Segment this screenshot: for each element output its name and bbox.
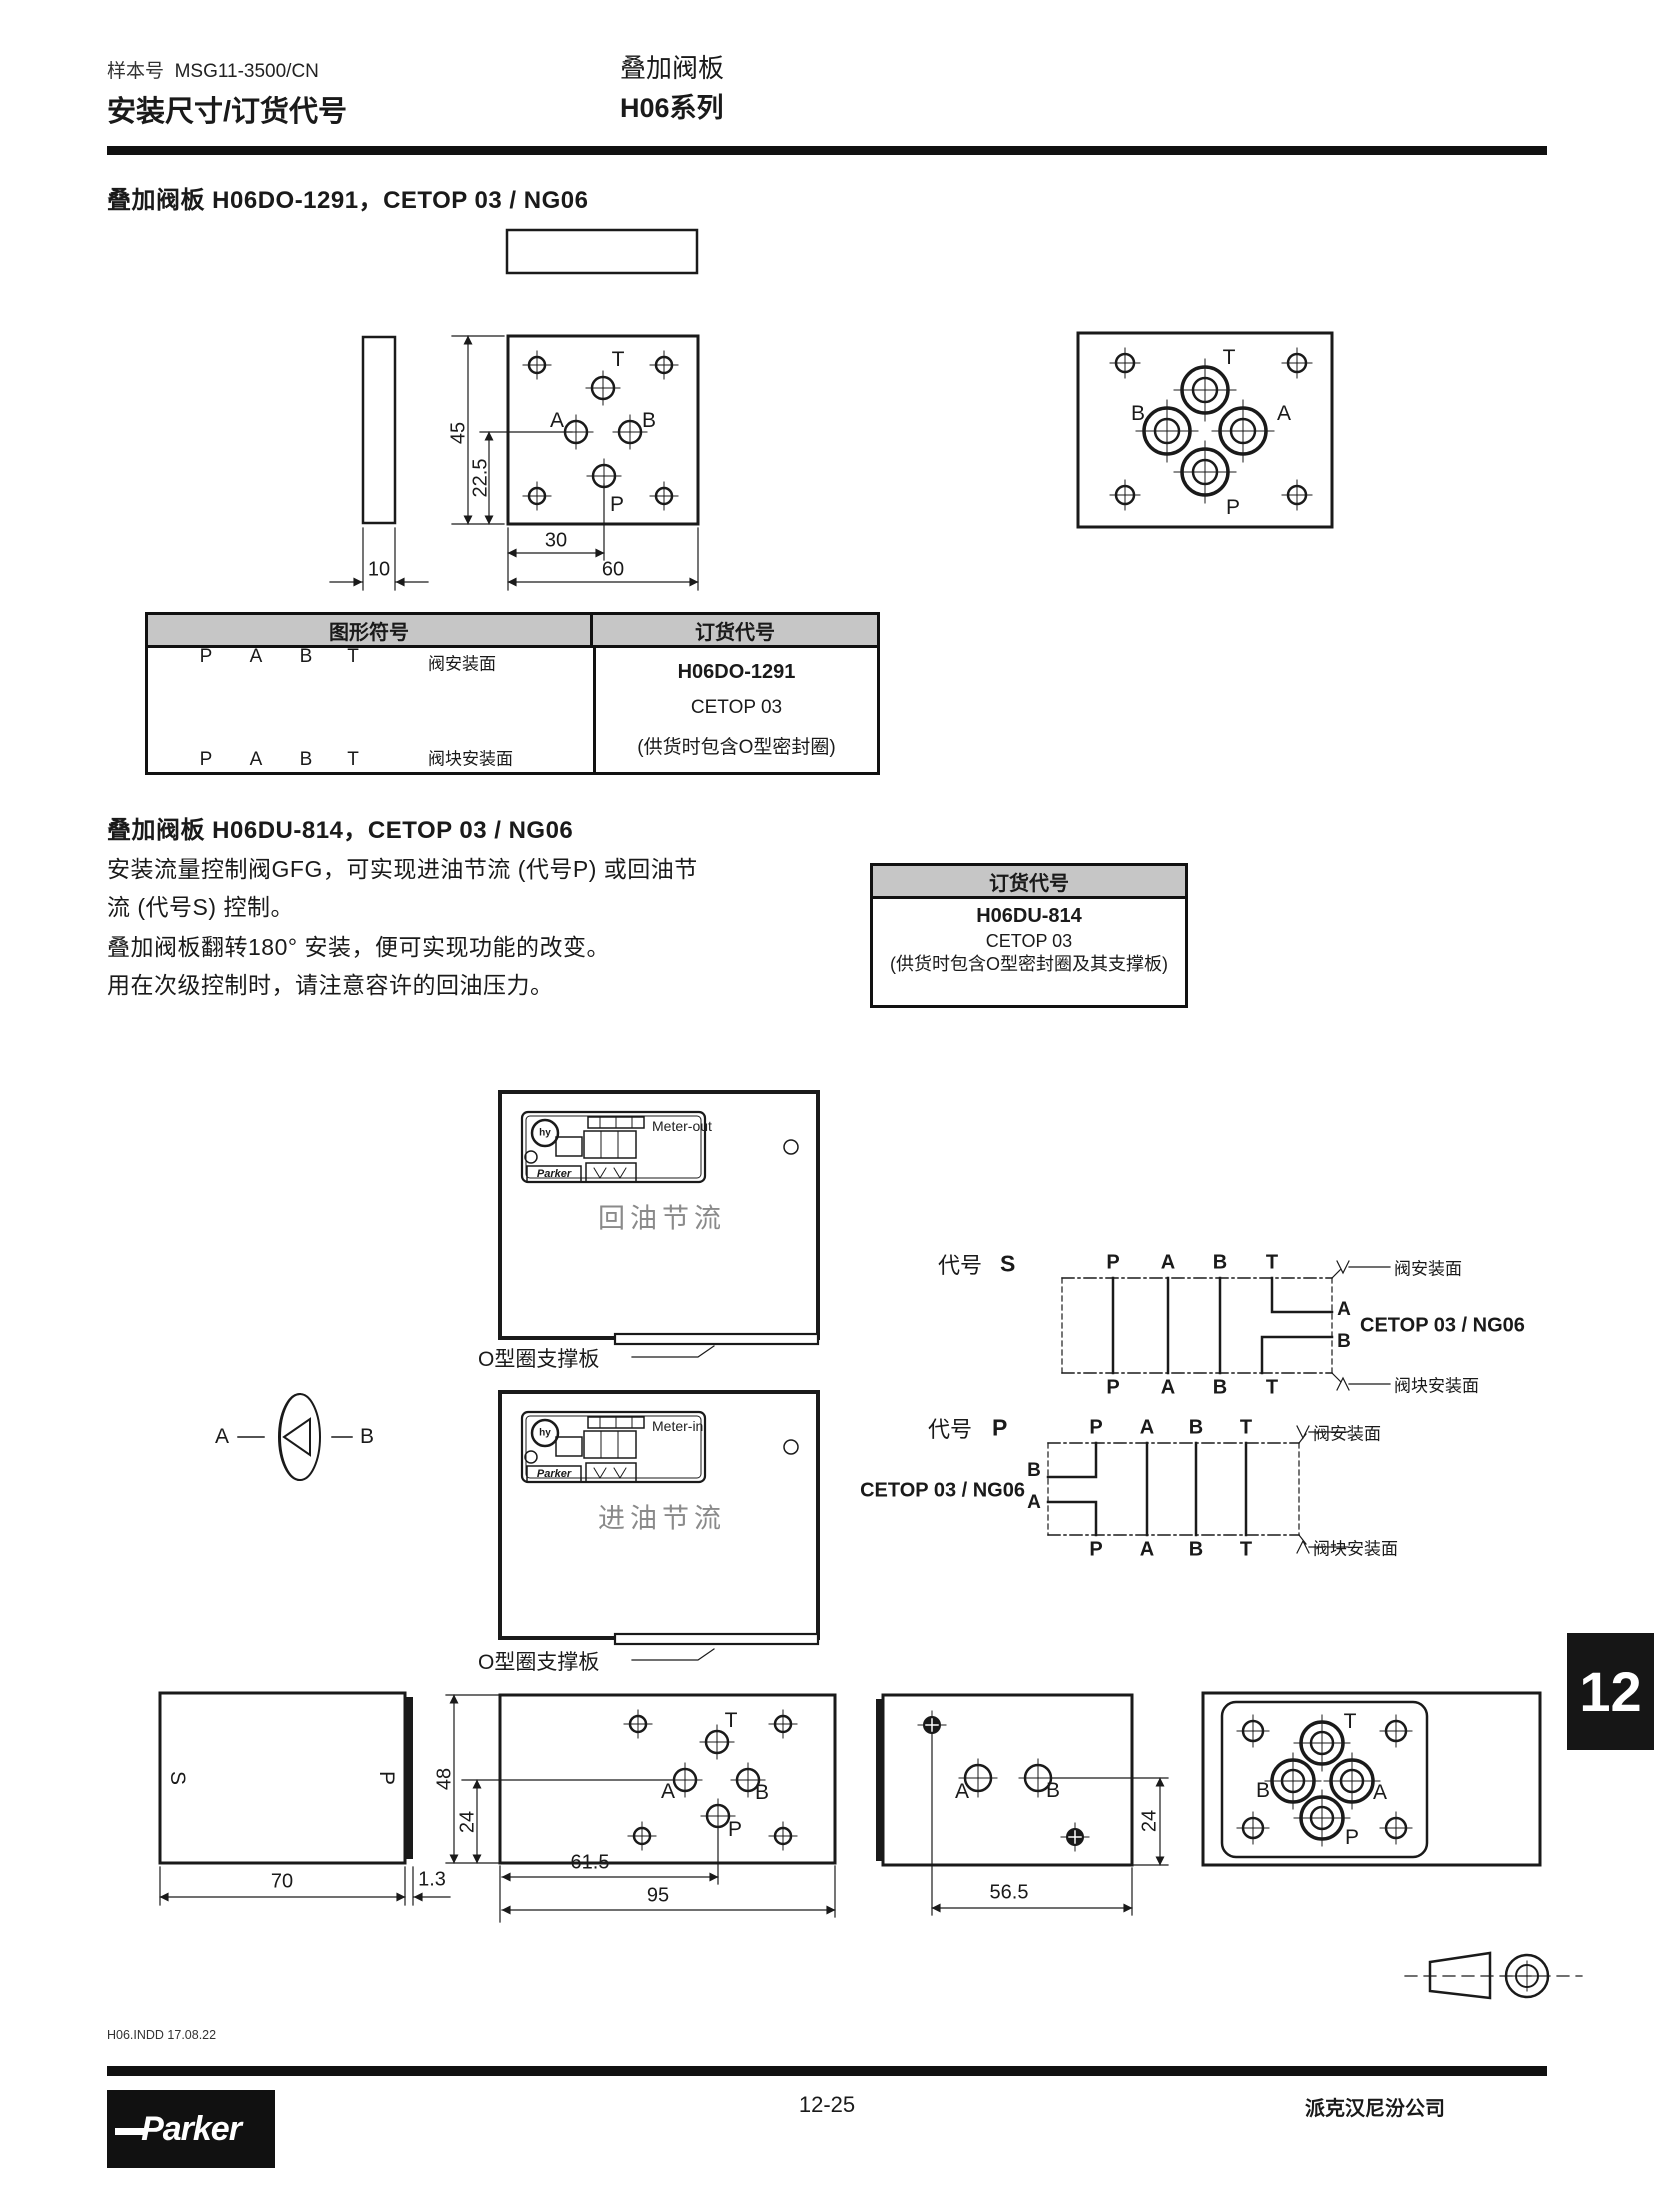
code-p-face-bottom: 阀块安装面 [1313, 1535, 1398, 1560]
code-p-bot-B: B [1189, 1539, 1203, 1562]
series-title: H06系列 [620, 86, 724, 125]
bottom-face-view [1203, 1693, 1540, 1865]
face-port-B: B [1131, 402, 1145, 426]
bottom-side-view [160, 1693, 450, 1905]
sym-top-T: T [347, 646, 359, 668]
sym-bot-P: P [200, 749, 213, 771]
code-s-bot-P: P [1106, 1377, 1119, 1400]
dim-22-5: 22.5 [470, 459, 493, 498]
order-note-1: (供货时包含O型密封圈) [637, 732, 835, 759]
projection-symbol [1405, 1953, 1582, 1998]
sym-top-B: B [300, 646, 313, 668]
file-info: H06.INDD 17.08.22 [107, 2028, 216, 2042]
code-s-out-A: A [1337, 1299, 1351, 1321]
code-p-out-B: B [1027, 1460, 1041, 1482]
bd4-A: A [1373, 1781, 1387, 1805]
code-p-top-A: A [1140, 1417, 1154, 1440]
bd1-S: S [165, 1771, 189, 1785]
oring-support-label-2: O型圈支撑板 [478, 1646, 599, 1676]
order-note-2: (供货时包含O型密封圈及其支撑板) [879, 953, 1179, 976]
face-port-P: P [1226, 496, 1240, 520]
code-s-out-B: B [1337, 1331, 1351, 1353]
code-p-prefix: 代号 [928, 1412, 972, 1444]
bd2-T: T [725, 1709, 738, 1733]
bd2-P: P [728, 1818, 742, 1842]
sym-bot-A: A [250, 749, 263, 771]
bd1-dim-1-3: 1.3 [418, 1869, 446, 1892]
bd4-P: P [1345, 1826, 1359, 1850]
table-header-code: 订货代号 [593, 615, 877, 645]
doc-number-value: MSG11-3500/CN [175, 61, 319, 82]
plate-top-view [507, 230, 697, 273]
header-rule [107, 146, 1547, 155]
bd3-dim-24: 24 [1139, 1810, 1162, 1832]
code-p-out-A: A [1027, 1492, 1041, 1514]
bd2-B: B [755, 1781, 769, 1805]
dim-30: 30 [545, 530, 567, 553]
sym-top-P: P [200, 646, 213, 668]
code-s-bot-T: T [1266, 1377, 1278, 1400]
dim-60: 60 [602, 559, 624, 582]
code-p-top-P: P [1089, 1417, 1102, 1440]
plan-dimensions [330, 336, 698, 590]
dim-45: 45 [448, 422, 471, 444]
code-p-top-T: T [1240, 1417, 1252, 1440]
bd2-dim-48: 48 [434, 1768, 457, 1790]
parker-plate-logo-1: Parker [537, 1168, 571, 1180]
meter-in-tag: Meter-in [652, 1418, 703, 1434]
section2-paragraph-1: 安装流量控制阀GFG，可实现进油节流 (代号P) 或回油节流 (代号S) 控制。 [107, 850, 721, 926]
plate-side-view [363, 337, 395, 523]
code-s-prefix: 代号 [938, 1248, 982, 1280]
section1-title: 叠加阀板 H06DO-1291，CETOP 03 / NG06 [107, 180, 588, 215]
chapter-tab: 12 [1567, 1633, 1654, 1750]
company-name: 派克汉尼汾公司 [1305, 2092, 1445, 2121]
sym-bot-B: B [300, 749, 313, 771]
face-port-T: T [1223, 346, 1236, 370]
footer-rule [107, 2066, 1547, 2076]
meter-in-label: 进油节流 [598, 1497, 726, 1536]
code-s-top-A: A [1161, 1252, 1175, 1275]
meter-out-tag: Meter-out [652, 1118, 712, 1134]
oring-support-label-1: O型圈支撑板 [478, 1343, 599, 1373]
order-code-1: H06DO-1291 [678, 661, 796, 684]
rotation-symbol [238, 1394, 352, 1480]
bottom-plan-view [446, 1695, 835, 1922]
rotation-label-B: B [360, 1425, 374, 1449]
bd2-dim-95: 95 [647, 1885, 669, 1908]
table-code-cell: H06DO-1291 CETOP 03 (供货时包含O型密封圈) [593, 648, 877, 772]
sym-bot-T: T [347, 749, 359, 771]
doc-number-label: 样本号 [107, 61, 164, 82]
technical-drawings-linework [0, 0, 1654, 2200]
order-box-header: 订货代号 [873, 866, 1185, 896]
code-s-top-T: T [1266, 1252, 1278, 1275]
face-port-A: A [1277, 402, 1291, 426]
table-header-symbol: 图形符号 [148, 615, 593, 645]
section2-paragraph-3: 用在次级控制时，请注意容许的回油压力。 [107, 966, 847, 1004]
code-p-letter: P [992, 1415, 1007, 1442]
bd4-T: T [1344, 1710, 1357, 1734]
block-face-label-1: 阀块安装面 [428, 745, 513, 770]
code-p-bot-P: P [1089, 1539, 1102, 1562]
code-p-circuit [1048, 1426, 1348, 1553]
code-s-bot-A: A [1161, 1377, 1175, 1400]
code-p-bot-T: T [1240, 1539, 1252, 1562]
bd2-dim-24: 24 [457, 1811, 480, 1833]
plan-port-T: T [612, 348, 625, 372]
bd1-dim-70: 70 [271, 1871, 293, 1894]
code-s-cetop: CETOP 03 / NG06 [1360, 1315, 1525, 1338]
catalog-page: 样本号 MSG11-3500/CN 安装尺寸/订货代号 叠加阀板 H06系列 叠… [0, 0, 1654, 2200]
rotation-label-A: A [215, 1425, 229, 1449]
plan-port-A: A [550, 409, 564, 433]
plan-port-P: P [610, 493, 624, 517]
code-s-face-top: 阀安装面 [1394, 1255, 1462, 1280]
bd1-P: P [374, 1771, 398, 1785]
series-subtitle: 叠加阀板 [620, 48, 724, 85]
code-s-face-bottom: 阀块安装面 [1394, 1372, 1479, 1397]
code-p-face-top: 阀安装面 [1313, 1420, 1381, 1445]
cetop-2: CETOP 03 [986, 929, 1072, 953]
hy-logo-2: hy [539, 1428, 551, 1439]
valve-face-label-1: 阀安装面 [428, 650, 496, 675]
bd3-B: B [1046, 1779, 1060, 1803]
hy-logo-1: hy [539, 1128, 551, 1139]
bd3-A: A [955, 1780, 969, 1804]
parker-plate-logo-2: Parker [537, 1468, 571, 1480]
page-title: 安装尺寸/订货代号 [107, 88, 347, 130]
cetop-1: CETOP 03 [691, 697, 782, 719]
plan-port-B: B [642, 409, 656, 433]
bd2-dim-61-5: 61.5 [571, 1852, 610, 1875]
code-p-cetop: CETOP 03 / NG06 [860, 1480, 1025, 1503]
dim-10: 10 [368, 559, 390, 582]
bd4-B: B [1256, 1779, 1270, 1803]
bd3-dim-56-5: 56.5 [990, 1882, 1029, 1905]
order-code-2: H06DU-814 [976, 903, 1082, 929]
code-s-top-P: P [1106, 1252, 1119, 1275]
doc-number-line: 样本号 MSG11-3500/CN [107, 56, 319, 83]
code-s-top-B: B [1213, 1252, 1227, 1275]
code-s-letter: S [1000, 1251, 1015, 1278]
code-p-bot-A: A [1140, 1539, 1154, 1562]
bd2-A: A [661, 1780, 675, 1804]
code-s-circuit [1062, 1261, 1390, 1390]
section2-title: 叠加阀板 H06DU-814，CETOP 03 / NG06 [107, 810, 573, 845]
meter-out-label: 回油节流 [598, 1197, 726, 1236]
chapter-tab-number: 12 [1579, 1659, 1641, 1724]
plate-plan-view [508, 336, 698, 524]
sym-top-A: A [250, 646, 263, 668]
plate-face-view [1078, 333, 1332, 527]
order-code-box: 订货代号 H06DU-814 CETOP 03 (供货时包含O型密封圈及其支撑板… [870, 863, 1188, 1008]
section2-paragraph-2: 叠加阀板翻转180° 安装，便可实现功能的改变。 [107, 928, 847, 966]
code-s-bot-B: B [1213, 1377, 1227, 1400]
code-p-top-B: B [1189, 1417, 1203, 1440]
parker-logo-dash [115, 2128, 147, 2135]
